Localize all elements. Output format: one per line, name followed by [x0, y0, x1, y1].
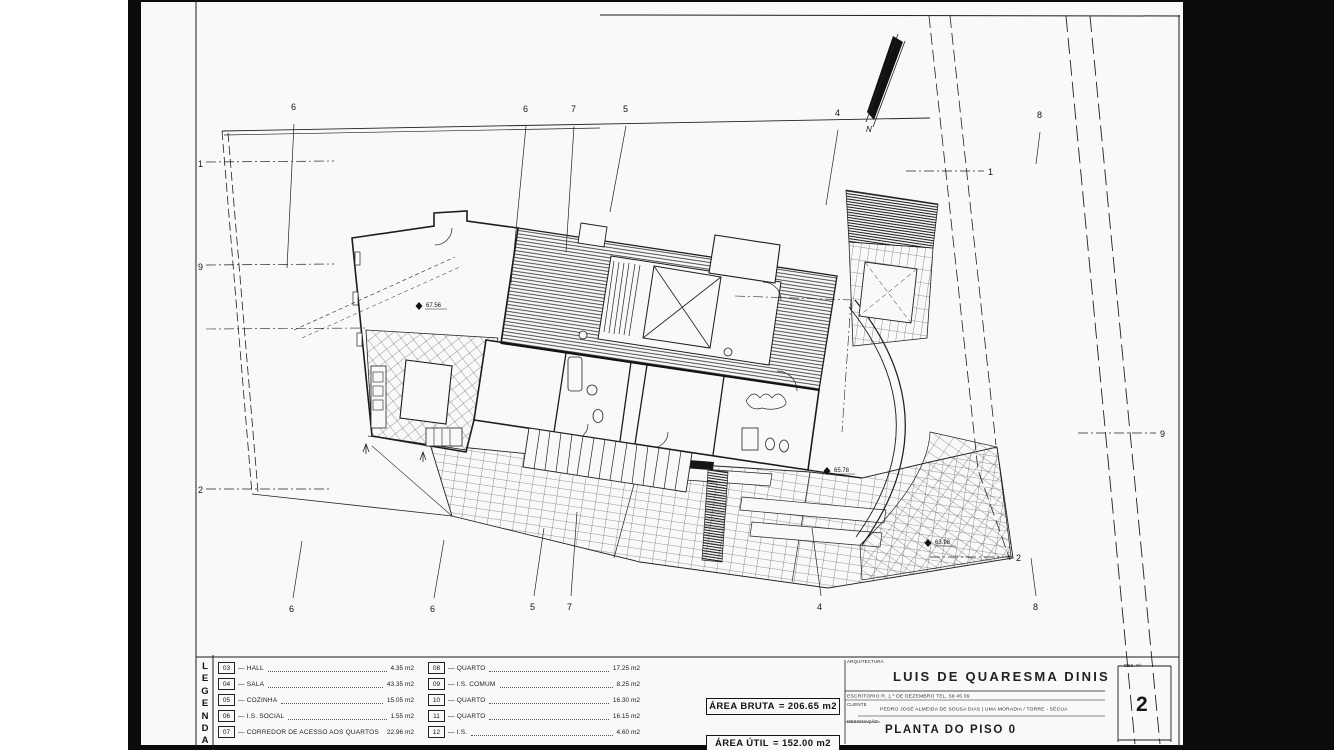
legend-item-area: 43.35 m2 [387, 681, 414, 688]
legend-title-letter: N [199, 711, 211, 722]
floor-plan-drawing: N 667548665748192192 67.5665.7863.98 [0, 0, 1334, 750]
grid-line [610, 126, 626, 212]
legend-leader-line [489, 664, 608, 672]
area-bruta-box: ÁREA BRUTA = 206.65 m2 [706, 698, 840, 715]
grid-label: 9 [198, 262, 203, 272]
grid-label: 6 [523, 104, 528, 114]
legend-item-area: 22.96 m2 [387, 729, 414, 736]
north-label: N [866, 125, 872, 134]
designation: PLANTA DO PISO 0 [885, 724, 1017, 736]
legend-item: 06— I.S. SOCIAL1.55 m2 [218, 708, 414, 724]
area-util-value: = 152.00 m2 [773, 738, 831, 749]
grid-line [206, 264, 334, 265]
legend-column-1: 03— HALL4.35 m204— SALA43.35 m205— COZIN… [218, 660, 414, 740]
legend-item-code: 03 [218, 662, 235, 674]
client-line: PEDRO JOSÉ ALMEIDA DE SOUSA DIAS | UMA M… [880, 706, 1068, 712]
discipline-label: ARQUITECTURA [847, 659, 884, 664]
area-bruta-label: ÁREA BRUTA [709, 701, 775, 712]
legend-item: 07— CORREDOR DE ACESSO AOS QUARTOS22.96 … [218, 724, 414, 740]
legend-item-name: — COZINHA [238, 697, 277, 704]
legend-item-area: 16.30 m2 [613, 697, 640, 704]
entry-ramp [846, 190, 938, 346]
legend-item-code: 10 [428, 694, 445, 706]
level-mark-value: 67.56 [426, 303, 442, 309]
legend-item: 09— I.S. COMUM8.25 m2 [428, 676, 640, 692]
legend-item-name: — I.S. COMUM [448, 681, 496, 688]
grid-label: 4 [835, 108, 840, 118]
legend-item-area: 16.15 m2 [613, 713, 640, 720]
legend-leader-line [489, 696, 608, 704]
grid-line [293, 541, 302, 598]
legend-title-letter: E [199, 673, 211, 684]
legend-item-area: 1.55 m2 [391, 713, 415, 720]
legend-item-area: 8.25 m2 [617, 681, 641, 688]
grid-label: 2 [198, 485, 203, 495]
legend-item-code: 08 [428, 662, 445, 674]
grid-line [206, 161, 334, 162]
area-util-label: ÁREA ÚTIL [715, 738, 769, 749]
legend-item-name: — I.S. [448, 729, 467, 736]
grid-line [434, 540, 444, 598]
legend-item-code: 11 [428, 710, 445, 722]
grid-label: 5 [623, 104, 628, 114]
grid-label: 2 [1016, 553, 1021, 563]
grid-line [534, 528, 544, 596]
legend-item-code: 12 [428, 726, 445, 738]
grid-label: 4 [817, 602, 822, 612]
legend-item-code: 07 [218, 726, 235, 738]
legend-item-code: 06 [218, 710, 235, 722]
legend-item-name: — QUARTO [448, 697, 485, 704]
legend-item-code: 04 [218, 678, 235, 690]
area-util-box: ÁREA ÚTIL = 152.00 m2 [706, 735, 840, 750]
grid-line [1031, 558, 1036, 596]
client-label: CLIENTE [847, 702, 867, 707]
legend-title-letter: D [199, 723, 211, 734]
grid-label: 7 [571, 104, 576, 114]
legend-leader-line [500, 680, 613, 688]
legend-item-name: — I.S. SOCIAL [238, 713, 284, 720]
designation-label: DESIGNAÇÃO [847, 719, 878, 724]
legend-item-name: — QUARTO [448, 713, 485, 720]
legend-title-letter: A [199, 735, 211, 746]
legend-leader-line [268, 664, 387, 672]
legend-item: 11— QUARTO16.15 m2 [428, 708, 640, 724]
grid-label: 1 [988, 167, 993, 177]
grid-label: 5 [530, 602, 535, 612]
grid-line [287, 124, 294, 268]
office-line: ESCRITORIO R. 1.º DE DEZEMBRO TEL. 59 45… [847, 693, 970, 699]
scanned-plan-sheet: N 667548665748192192 67.5665.7863.98 LEG… [0, 0, 1334, 750]
legend-item: 04— SALA43.35 m2 [218, 676, 414, 692]
legend-item: 03— HALL4.35 m2 [218, 660, 414, 676]
legend-column-2: 08— QUARTO17.25 m209— I.S. COMUM8.25 m21… [428, 660, 640, 740]
house-left-wing [206, 211, 518, 452]
legend-item-area: 4.35 m2 [391, 665, 415, 672]
legend-item-area: 4.60 m2 [617, 729, 641, 736]
legend-item-name: — SALA [238, 681, 264, 688]
architect-name: LUIS DE QUARESMA DINIS [893, 669, 1110, 684]
legend-item-name: — HALL [238, 665, 264, 672]
sheet-number-label: DES. Nº [1124, 663, 1141, 668]
legend-title-letter: G [199, 686, 211, 697]
grid-line [826, 130, 838, 205]
legend-leader-line [288, 712, 386, 720]
legend-item-code: 05 [218, 694, 235, 706]
legend-item: 08— QUARTO17.25 m2 [428, 660, 640, 676]
sheet-number: 2 [1136, 693, 1148, 717]
legend-item: 10— QUARTO16.30 m2 [428, 692, 640, 708]
grid-line [1036, 132, 1040, 164]
legend-item: 05— COZINHA15.05 m2 [218, 692, 414, 708]
level-mark-value: 63.98 [935, 540, 951, 546]
legend-item-name: — QUARTO [448, 665, 485, 672]
level-mark-value: 65.78 [834, 468, 850, 474]
legend-title-letter: E [199, 698, 211, 709]
area-bruta-value: = 206.65 m2 [779, 701, 837, 712]
grid-label: 6 [291, 102, 296, 112]
legend-leader-line [268, 680, 383, 688]
legend-item-area: 15.05 m2 [387, 697, 414, 704]
grid-label: 9 [1160, 429, 1165, 439]
grid-label: 8 [1037, 110, 1042, 120]
legend-item: 12— I.S.4.60 m2 [428, 724, 640, 740]
grid-label: 7 [567, 602, 572, 612]
grid-label: 6 [430, 604, 435, 614]
legend-item-name: — CORREDOR DE ACESSO AOS QUARTOS [238, 729, 379, 736]
legend-title-letter: L [199, 661, 211, 672]
grid-label: 8 [1033, 602, 1038, 612]
grid-label: 1 [198, 159, 203, 169]
legend-item-area: 17.25 m2 [613, 665, 640, 672]
legend-item-code: 09 [428, 678, 445, 690]
legend-leader-line [471, 728, 612, 736]
legend-leader-line [281, 696, 383, 704]
grid-line [566, 126, 574, 252]
grid-label: 6 [289, 604, 294, 614]
legend-leader-line [489, 712, 608, 720]
